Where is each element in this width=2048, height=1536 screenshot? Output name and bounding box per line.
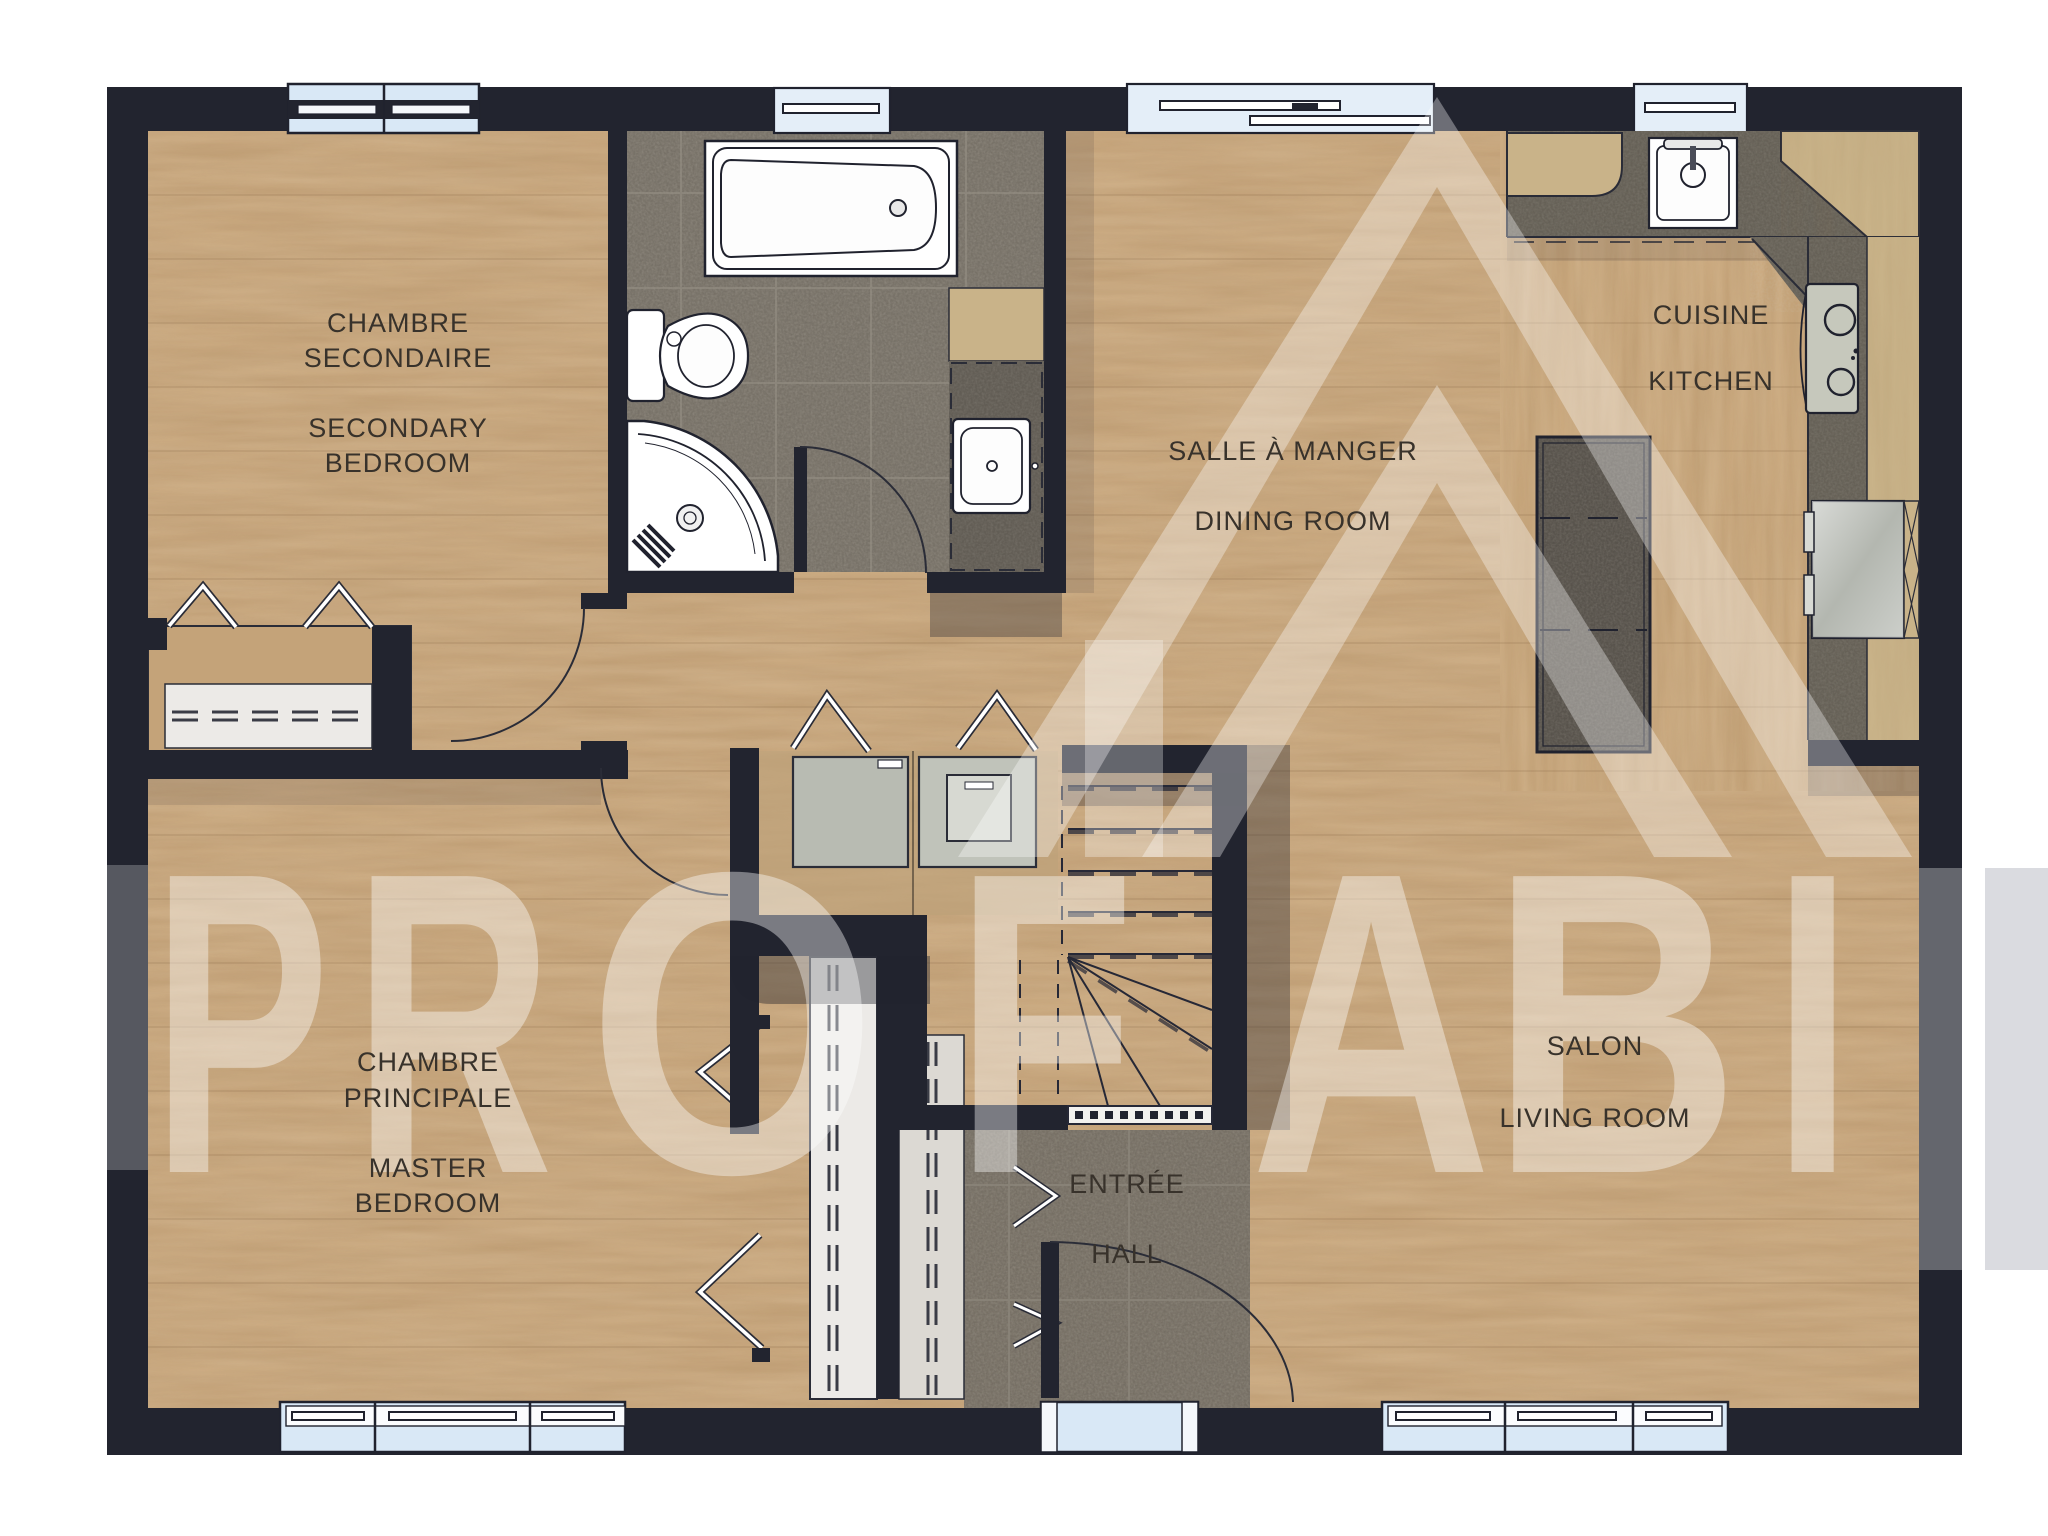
svg-text:LIVING ROOM: LIVING ROOM xyxy=(1499,1103,1690,1133)
svg-text:CHAMBRE: CHAMBRE xyxy=(327,308,469,338)
svg-text:BEDROOM: BEDROOM xyxy=(355,1188,502,1218)
svg-text:HALL: HALL xyxy=(1091,1239,1163,1269)
svg-text:I: I xyxy=(1772,783,1853,1264)
svg-text:DINING ROOM: DINING ROOM xyxy=(1195,506,1392,536)
svg-text:A: A xyxy=(1250,783,1492,1264)
svg-text:KITCHEN: KITCHEN xyxy=(1648,366,1774,396)
svg-text:SECONDARY: SECONDARY xyxy=(308,413,488,443)
svg-text:MASTER: MASTER xyxy=(369,1153,488,1183)
svg-text:ENTRÉE: ENTRÉE xyxy=(1069,1169,1185,1199)
svg-text:B: B xyxy=(1490,782,1740,1263)
svg-text:CUISINE: CUISINE xyxy=(1653,300,1770,330)
svg-text:BEDROOM: BEDROOM xyxy=(325,448,472,478)
svg-text:O: O xyxy=(587,784,878,1264)
svg-text:PRINCIPALE: PRINCIPALE xyxy=(344,1083,513,1113)
svg-text:P: P xyxy=(152,783,330,1264)
svg-text:SALLE À MANGER: SALLE À MANGER xyxy=(1168,436,1418,466)
svg-text:CHAMBRE: CHAMBRE xyxy=(357,1047,499,1077)
svg-text:SECONDAIRE: SECONDAIRE xyxy=(304,343,493,373)
svg-text:SALON: SALON xyxy=(1547,1031,1644,1061)
